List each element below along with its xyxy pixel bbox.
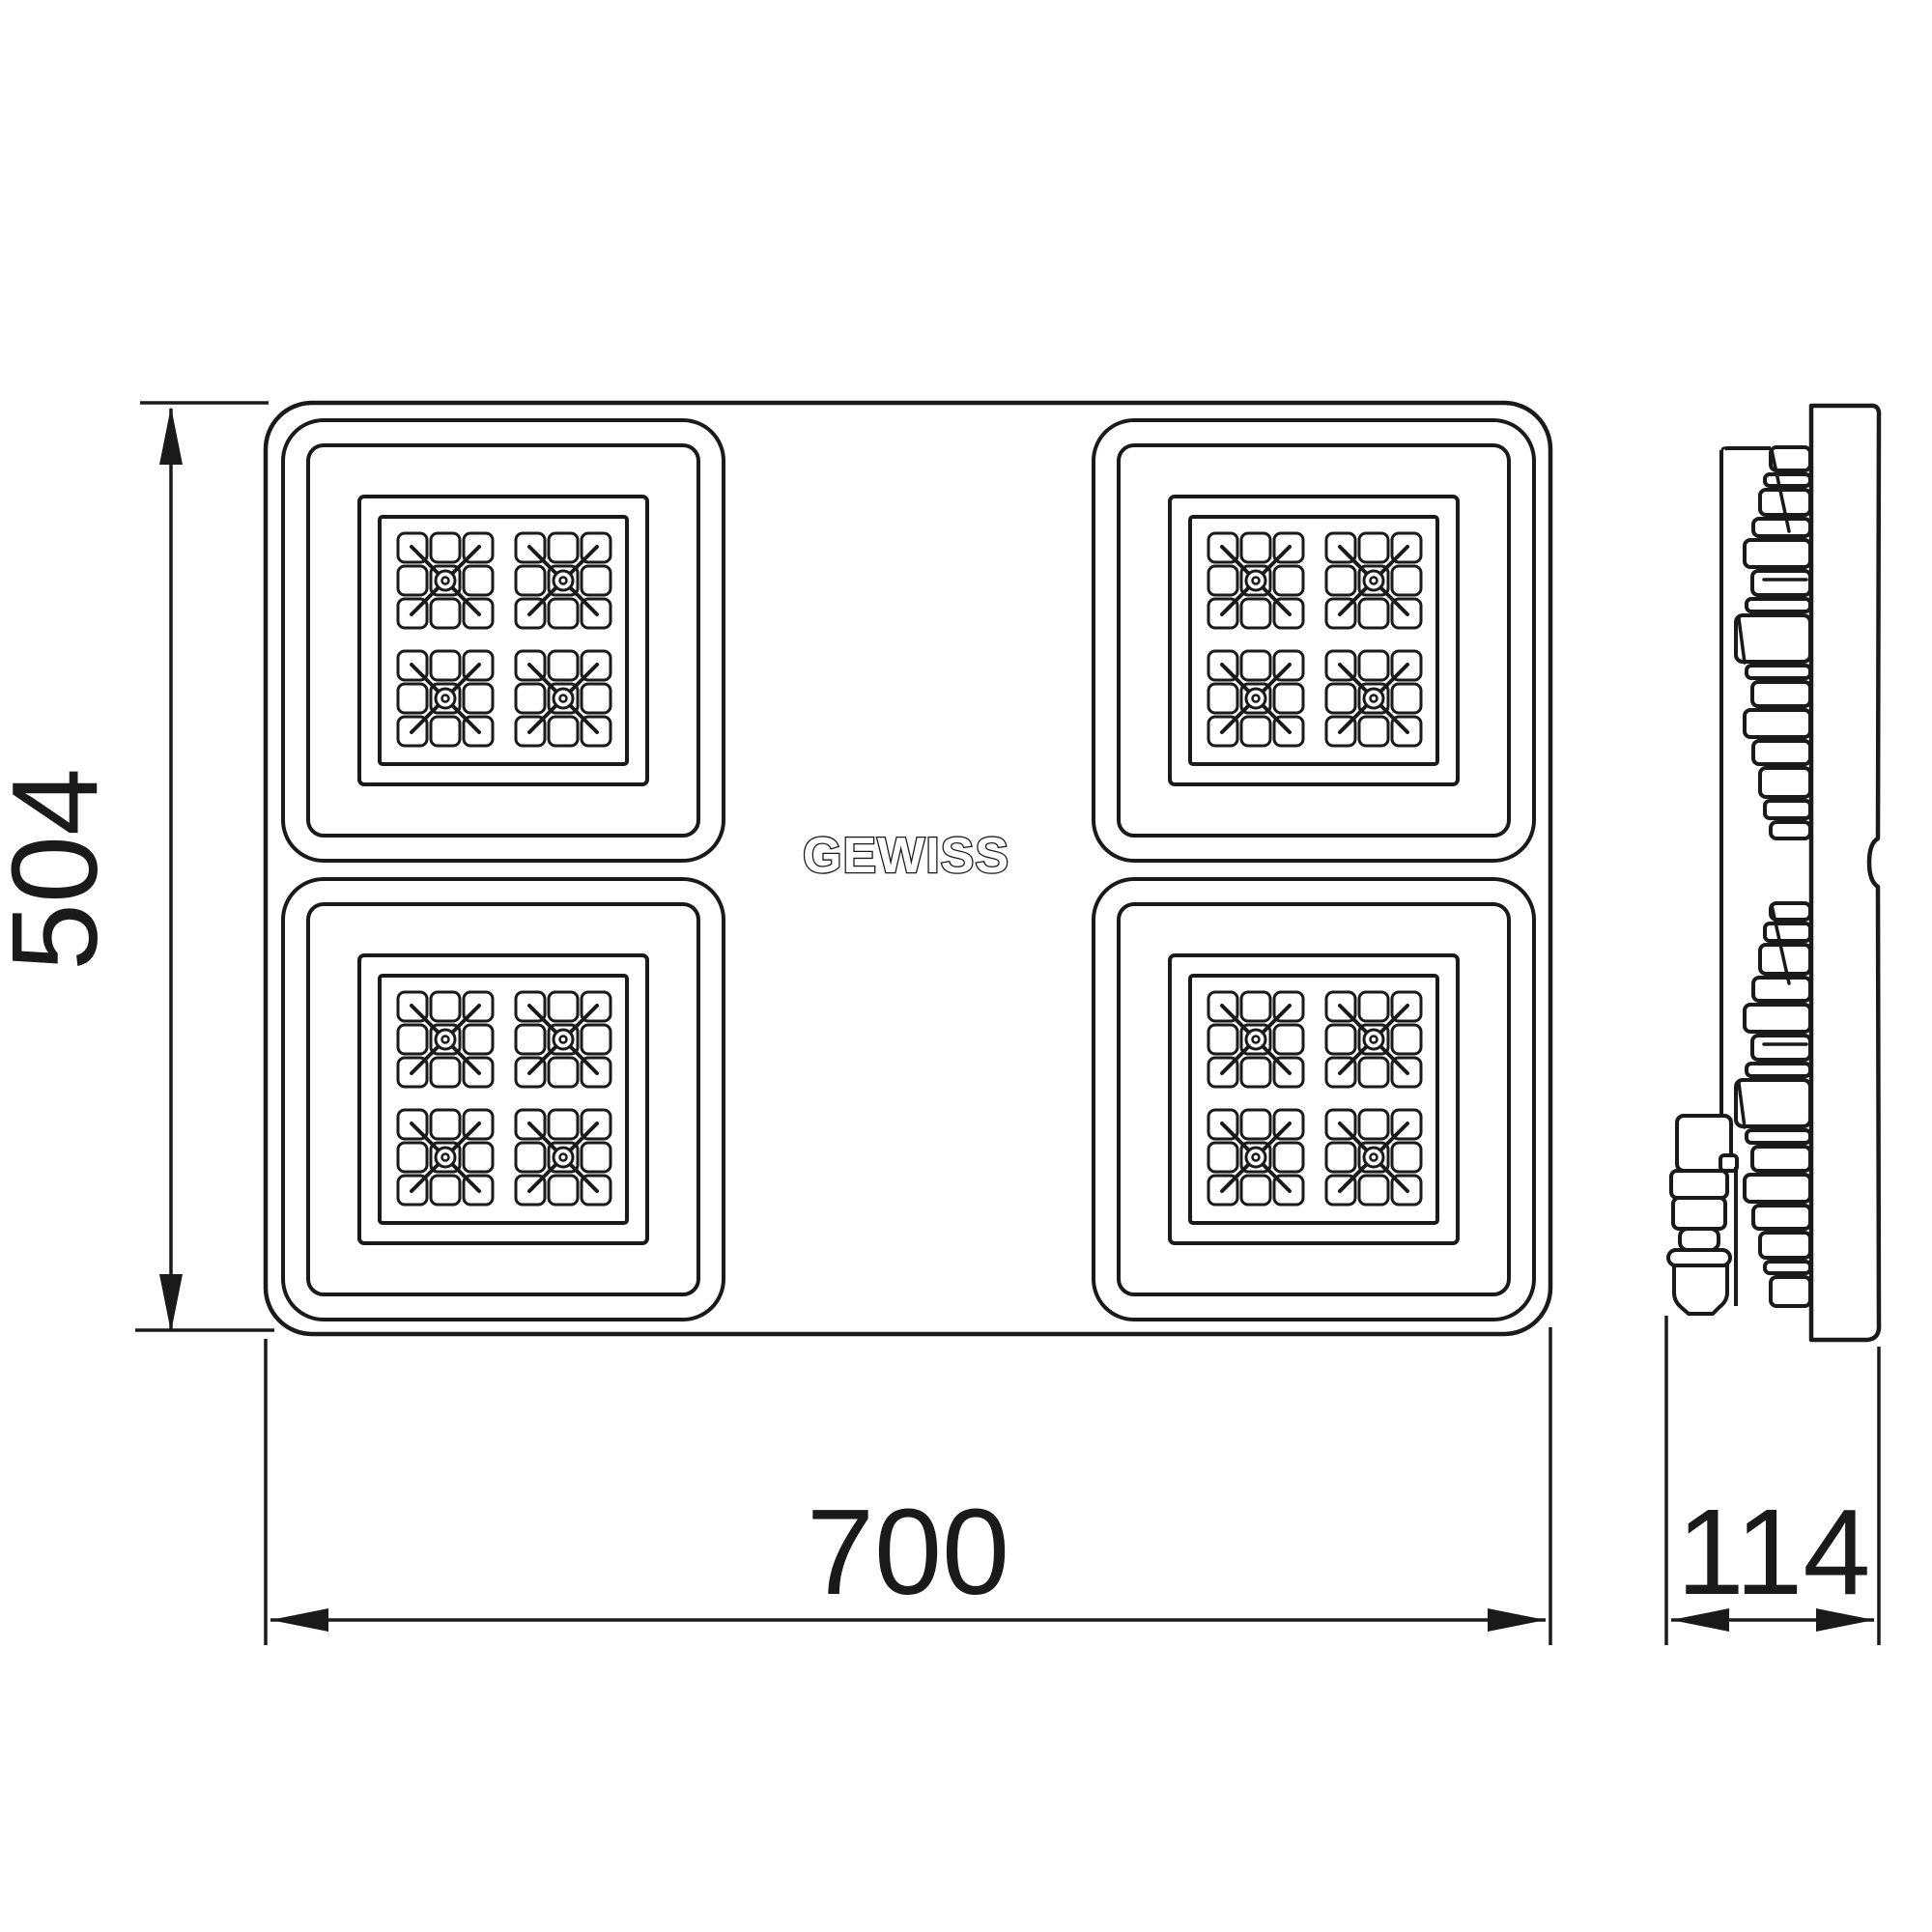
led-module	[1094, 420, 1534, 861]
width-dimension-label: 700	[807, 1484, 1009, 1620]
front-view: GEWISS	[266, 403, 1550, 1334]
led-module	[283, 879, 724, 1320]
side-view	[1668, 406, 1879, 1340]
dimension-height: 504	[0, 403, 274, 1332]
side-body-outline	[1811, 406, 1879, 1340]
arrow-left-icon	[270, 1608, 328, 1632]
height-dimension-label: 504	[0, 768, 123, 971]
arrow-right-icon	[1488, 1608, 1546, 1632]
led-module	[1094, 879, 1534, 1320]
dimension-depth: 114	[1666, 1316, 1879, 1645]
led-module	[283, 420, 724, 861]
floodlight-dimensional-drawing: GEWISS	[0, 0, 1932, 1932]
heatsink-fins-lower	[1736, 903, 1810, 1306]
dimension-width: 700	[266, 1327, 1550, 1645]
technical-drawing-page: GEWISS	[0, 0, 1932, 1932]
gewiss-logo: GEWISS	[803, 828, 1009, 884]
cable-gland	[1668, 1116, 1737, 1314]
arrow-up-icon	[159, 407, 183, 465]
heatsink-fins-upper	[1736, 447, 1810, 838]
arrow-down-icon	[159, 1274, 183, 1332]
depth-dimension-label: 114	[1677, 1484, 1871, 1620]
